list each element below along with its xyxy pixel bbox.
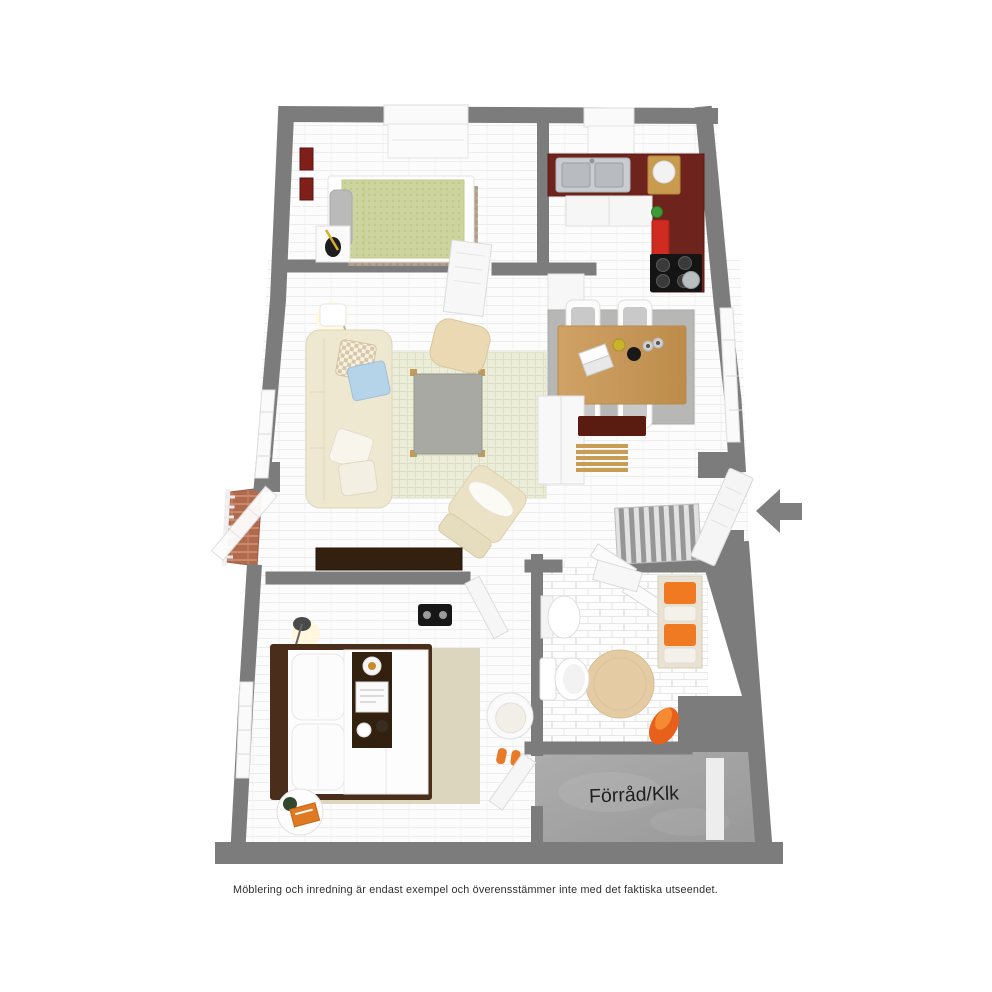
media-sideboard xyxy=(316,548,462,570)
towel-white xyxy=(664,606,696,621)
floor-plan-rendering: Förråd/Klk xyxy=(0,0,992,992)
window-kitchen xyxy=(584,108,634,127)
faucet-icon xyxy=(590,159,595,164)
blue-pillow xyxy=(347,360,391,401)
cup xyxy=(357,723,371,737)
disclaimer-caption: Möblering och inredning är endast exempe… xyxy=(233,884,718,896)
towel-orange xyxy=(664,582,696,604)
striped-rug xyxy=(615,504,702,564)
red-canister xyxy=(652,220,669,256)
storage-inner-wall-face xyxy=(706,758,724,840)
pedestal-sink xyxy=(548,596,580,638)
single-bed-duvet xyxy=(342,180,464,258)
shoe-bench xyxy=(578,416,646,436)
coffee-table xyxy=(414,374,482,454)
bowl-icon xyxy=(627,347,641,361)
storage-room-label: Förråd/Klk xyxy=(589,782,680,807)
wall-bathroom-right xyxy=(702,560,754,696)
towel-white xyxy=(664,648,696,663)
white-pot xyxy=(653,161,675,183)
wall-art xyxy=(300,148,313,170)
green-bottle xyxy=(652,207,663,218)
floor-lamp xyxy=(320,304,346,326)
bathroom-round-rug xyxy=(586,650,654,718)
entrance-arrow-icon xyxy=(756,489,802,533)
white-pillow xyxy=(338,460,378,497)
magazine xyxy=(356,682,388,712)
steel-pot xyxy=(683,272,700,289)
door-bedroom1 xyxy=(443,240,491,316)
towel-orange xyxy=(664,624,696,646)
cup xyxy=(376,720,388,732)
dining-table xyxy=(558,326,686,404)
window-bench-bedroom1 xyxy=(388,124,468,158)
wall-art xyxy=(300,178,313,200)
window-bedroom1 xyxy=(384,105,468,125)
bowl-icon xyxy=(613,339,625,351)
floor-plan-page: Förråd/Klk Möblering och inredning är en… xyxy=(0,0,992,992)
toilet-tank xyxy=(540,658,556,700)
window-bench-kitchen xyxy=(588,126,634,154)
